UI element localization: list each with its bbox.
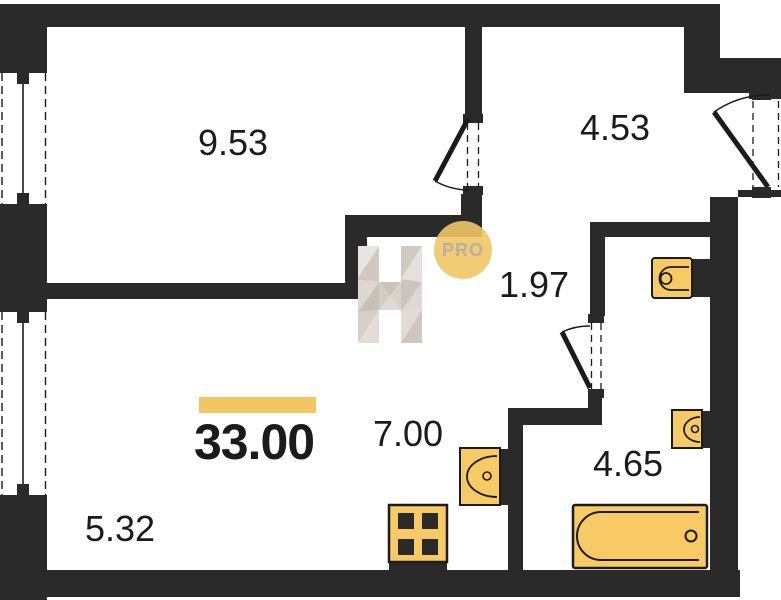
room-area-label-corridor: 1.97: [499, 264, 569, 306]
bathtub-icon: [573, 505, 707, 568]
wash-basin-icon: [672, 410, 712, 448]
room-area-label-kitchen-niche: 7.00: [373, 413, 443, 455]
total-area-label: 33.00: [194, 413, 314, 471]
total-area-accent-bar: [199, 397, 316, 413]
h-logo-icon: [358, 246, 422, 343]
toilet-icon: [652, 258, 710, 298]
pro-badge: PRO: [434, 221, 492, 279]
pro-badge-label: PRO: [442, 240, 484, 261]
balcony-door: [714, 89, 781, 198]
room-area-label-entry-hall: 4.53: [580, 107, 650, 149]
room-area-label-bathroom: 4.65: [593, 443, 663, 485]
door: [562, 323, 601, 389]
door: [435, 119, 479, 190]
stove-icon: [389, 505, 447, 570]
kitchen-sink-icon: [460, 448, 508, 505]
room-area-label-lower-room: 5.32: [85, 508, 155, 550]
room-area-label-living-room: 9.53: [198, 122, 268, 164]
window: [2, 312, 46, 495]
floor-plan: PRO 9.53 4.53 1.97 7.00 4.65 5.32 33.00: [0, 0, 781, 600]
window: [2, 73, 46, 204]
